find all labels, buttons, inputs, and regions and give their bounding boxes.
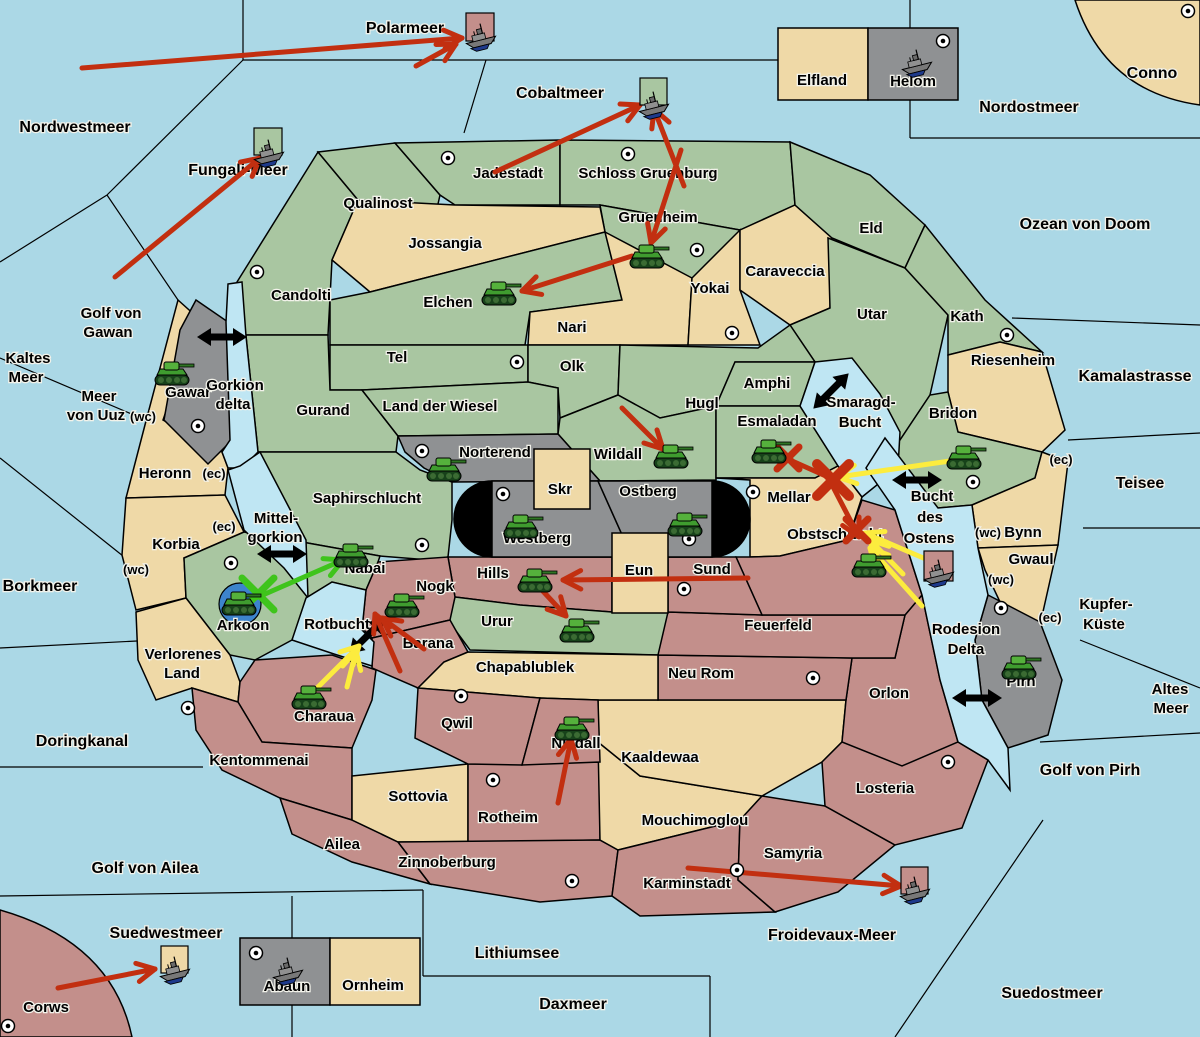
- city-dot-icon-27: [2, 1020, 15, 1033]
- label-45: Gurand: [296, 402, 349, 419]
- label-104: des: [917, 509, 943, 526]
- label-15: Kupfer-: [1079, 596, 1132, 613]
- label-0: Nordwestmeer: [19, 119, 130, 136]
- label-39: Eld: [859, 220, 882, 237]
- label-92: Ailea: [324, 836, 361, 853]
- city-dot-icon-20: [942, 756, 955, 769]
- game-map: NordwestmeerPolarmeerCobaltmeerFungali-M…: [0, 0, 1200, 1037]
- label-44: Tel: [387, 349, 408, 366]
- label-59: delta: [215, 396, 251, 413]
- label-102: Bucht: [839, 414, 882, 431]
- city-dot-icon-16: [967, 476, 980, 489]
- label-32: Jossangia: [408, 235, 482, 252]
- city-dot-icon-24: [566, 875, 579, 888]
- label-35: Nari: [557, 319, 586, 336]
- label-101: Smaragd-: [826, 394, 895, 411]
- label-77: Chapablublek: [476, 659, 575, 676]
- city-dot-icon-19: [807, 672, 820, 685]
- label-38: Caraveccia: [745, 263, 825, 280]
- label-60: Mittel-: [254, 510, 298, 527]
- label-40: Utar: [857, 306, 887, 323]
- label-20: Doringkanal: [36, 733, 128, 750]
- label-18: Meer: [1153, 700, 1188, 717]
- label-113: (wc): [975, 525, 1001, 540]
- label-98: Bynn: [1004, 524, 1042, 541]
- label-58: Gorkion: [206, 377, 264, 394]
- label-89: Zinnoberburg: [398, 854, 496, 871]
- label-84: Orlon: [869, 685, 909, 702]
- label-114: (wc): [988, 572, 1014, 587]
- city-dot-icon-14: [192, 420, 205, 433]
- city-dot-icon-21: [455, 690, 468, 703]
- label-34: Elchen: [423, 294, 472, 311]
- label-43: Bridon: [929, 405, 977, 422]
- label-21: Golf von Ailea: [92, 860, 199, 877]
- label-93: Corws: [23, 999, 69, 1016]
- label-1: Polarmeer: [366, 20, 444, 37]
- city-dot-icon-5: [1001, 329, 1014, 342]
- label-103: Bucht: [911, 488, 954, 505]
- label-110: (ec): [212, 519, 235, 534]
- label-80: Kaaldewaa: [621, 749, 699, 766]
- label-25: Suedostmeer: [1001, 985, 1102, 1002]
- label-6: Kaltes: [5, 350, 50, 367]
- label-90: Karminstadt: [643, 875, 731, 892]
- label-70: Kentommenai: [209, 752, 308, 769]
- label-56: Mellar: [767, 489, 811, 506]
- city-dot-icon-15: [225, 557, 238, 570]
- city-dot-icon-2: [691, 244, 704, 257]
- label-7: Meer: [8, 369, 43, 386]
- label-33: Candolti: [271, 287, 331, 304]
- label-22: Suedwestmeer: [110, 925, 223, 942]
- city-dot-icon-3: [251, 266, 264, 279]
- city-dot-icon-18: [678, 583, 691, 596]
- label-74: Urur: [481, 613, 513, 630]
- label-23: Golf von Pirh: [1040, 762, 1140, 779]
- label-53: Hugl: [685, 395, 718, 412]
- label-37: Yokai: [691, 280, 730, 297]
- city-dot-icon-22: [182, 702, 195, 715]
- city-dot-icon-23: [487, 774, 500, 787]
- label-30: Qualinost: [343, 195, 412, 212]
- label-81: Feuerfeld: [744, 617, 812, 634]
- city-dot-icon-8: [937, 35, 950, 48]
- label-52: Wildall: [594, 446, 642, 463]
- city-dot-icon-17: [995, 602, 1008, 615]
- label-87: Rotheim: [478, 809, 538, 826]
- city-dot-icon-7: [1182, 5, 1195, 18]
- label-54: Amphi: [744, 375, 791, 392]
- label-8: Meer: [81, 388, 116, 405]
- label-78: Qwil: [441, 715, 473, 732]
- label-4: Golf von: [81, 305, 142, 322]
- label-63: Korbia: [152, 536, 200, 553]
- label-29: Schloss Gruenburg: [578, 165, 717, 182]
- label-99: Gwaul: [1008, 551, 1053, 568]
- city-dot-icon-4: [726, 327, 739, 340]
- label-94: Elfland: [797, 72, 847, 89]
- region-rotheim[interactable]: [468, 762, 600, 842]
- label-9: von Uuz: [67, 407, 125, 424]
- label-24: Froidevaux-Meer: [768, 927, 896, 944]
- label-69: Charaua: [294, 708, 355, 725]
- label-106: Rodesion: [932, 621, 1000, 638]
- region-ornheim[interactable]: [330, 938, 420, 1005]
- region-skr[interactable]: [534, 449, 590, 509]
- label-85: Losteria: [856, 780, 915, 797]
- label-105: Ostens: [904, 530, 955, 547]
- city-dot-icon-12: [747, 486, 760, 499]
- label-67: Verlorenes: [145, 646, 222, 663]
- label-17: Altes: [1152, 681, 1189, 698]
- label-10: Nordostmeer: [979, 99, 1079, 116]
- label-19: Borkmeer: [3, 578, 78, 595]
- label-26: Daxmeer: [539, 996, 607, 1013]
- label-97: Ornheim: [342, 977, 404, 994]
- label-62: Heronn: [139, 465, 192, 482]
- label-55: Esmaladan: [737, 413, 816, 430]
- label-91: Samyria: [764, 845, 823, 862]
- label-51: Ostberg: [619, 483, 677, 500]
- label-68: Land: [164, 665, 200, 682]
- label-76: Sund: [693, 561, 731, 578]
- label-47: Saphirschlucht: [313, 490, 421, 507]
- label-2: Cobaltmeer: [516, 85, 604, 102]
- label-115: (ec): [1038, 610, 1061, 625]
- label-11: Conno: [1127, 65, 1178, 82]
- label-108: (wc): [130, 409, 156, 424]
- label-111: (wc): [123, 562, 149, 577]
- label-16: Küste: [1083, 616, 1125, 633]
- label-107: Delta: [948, 641, 985, 658]
- label-88: Mouchimoglou: [642, 812, 749, 829]
- label-46: Land der Wiesel: [383, 398, 498, 415]
- map-stage: NordwestmeerPolarmeerCobaltmeerFungali-M…: [0, 0, 1200, 1037]
- label-36: Olk: [560, 358, 585, 375]
- label-75: Eun: [625, 562, 653, 579]
- label-41: Kath: [950, 308, 983, 325]
- label-112: (ec): [1049, 452, 1072, 467]
- city-dot-icon-6: [511, 356, 524, 369]
- label-57: Gawar: [165, 384, 211, 401]
- label-82: Neu Rom: [668, 665, 734, 682]
- label-66: Rotbucht: [304, 616, 370, 633]
- label-61: gorkion: [248, 529, 303, 546]
- label-14: Teisee: [1116, 475, 1165, 492]
- label-5: Gawan: [83, 324, 132, 341]
- label-49: Skr: [548, 481, 572, 498]
- city-dot-icon-9: [416, 445, 429, 458]
- label-48: Norterend: [459, 444, 531, 461]
- city-dot-icon-0: [442, 152, 455, 165]
- label-73: Hills: [477, 565, 509, 582]
- city-dot-icon-13: [416, 539, 429, 552]
- label-71: Nogk: [416, 578, 454, 595]
- city-dot-icon-1: [622, 148, 635, 161]
- city-dot-icon-26: [250, 947, 263, 960]
- label-27: Lithiumsee: [475, 945, 560, 962]
- region-elfland[interactable]: [778, 28, 868, 100]
- city-dot-icon-10: [497, 488, 510, 501]
- label-12: Ozean von Doom: [1020, 216, 1151, 233]
- city-dot-icon-25: [731, 864, 744, 877]
- label-42: Riesenheim: [971, 352, 1055, 369]
- label-65: Arkoon: [217, 617, 270, 634]
- label-109: (ec): [202, 466, 225, 481]
- label-13: Kamalastrasse: [1079, 368, 1192, 385]
- label-86: Sottovia: [388, 788, 448, 805]
